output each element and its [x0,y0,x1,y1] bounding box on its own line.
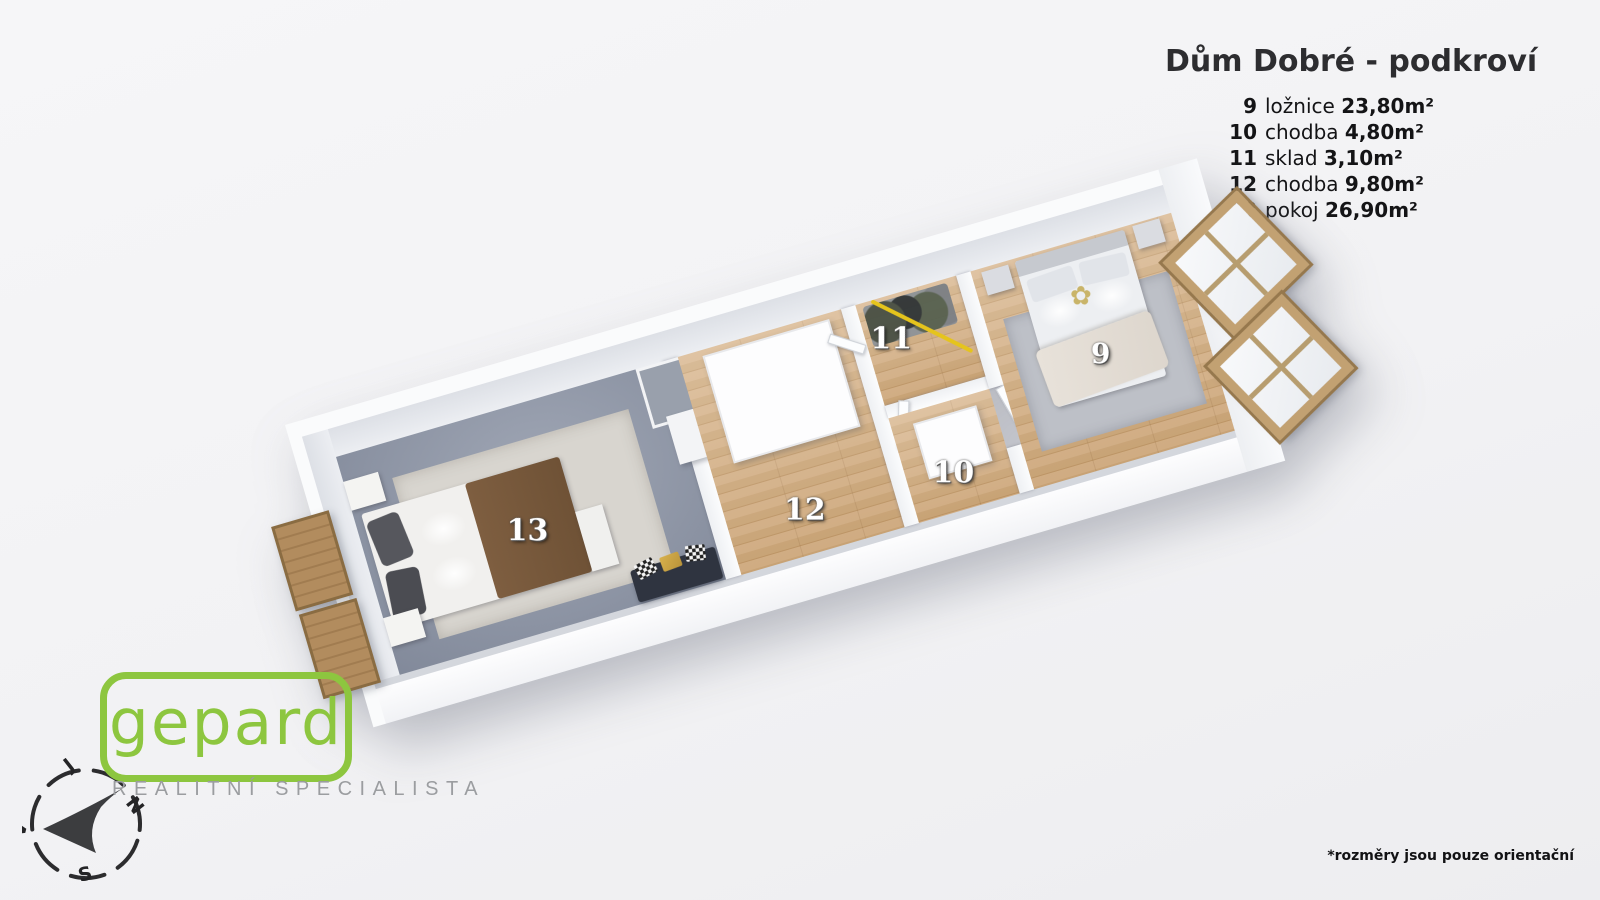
legend-row: 12 chodba 9,80m² [1221,171,1535,197]
legend-row: 10 chodba 4,80m² [1221,119,1535,145]
checkered-pillow [685,544,707,562]
legend-room-entry: ložnice 23,80m² [1265,93,1535,119]
light-glow [417,506,471,552]
legend-room-area: 23,80m² [1341,94,1434,118]
legend-row: 9 ložnice 23,80m² [1221,93,1535,119]
legend-room-area: 3,10m² [1324,146,1403,170]
floorplan-render: 13 12 11 [285,158,1285,727]
gepard-logo-text: gepard [109,691,343,764]
legend-room-name: ložnice [1265,94,1335,118]
light-glow [428,551,482,597]
legend-room-name: pokoj [1265,198,1319,222]
legend-room-area: 9,80m² [1345,172,1424,196]
compass-letter-s: S [76,862,95,887]
legend-room-entry: chodba 4,80m² [1265,119,1535,145]
legend-room-entry: sklad 3,10m² [1265,145,1535,171]
room-label-12: 12 [784,496,826,526]
room-label-10: 10 [932,458,974,488]
nightstand [981,265,1015,296]
brand-tagline: REALITNÍ SPECIALISTA [112,778,485,801]
compass-needle [43,788,123,853]
page-title: Dům Dobré - podkroví [1165,44,1535,79]
pillow [365,510,415,567]
disclaimer-note: *rozměry jsou pouze orientační [1327,848,1574,864]
flower-decor-icon: ✿ [1070,283,1092,309]
legend-room-area: 26,90m² [1325,198,1418,222]
legend-room-area: 4,80m² [1345,120,1424,144]
legend-room-name: chodba [1265,120,1339,144]
legend-room-entry: pokoj 26,90m² [1265,197,1535,223]
room-label-11: 11 [870,324,912,354]
legend-room-name: sklad [1265,146,1318,170]
legend-room-number: 9 [1221,93,1257,119]
room-legend: 9 ložnice 23,80m² 10 chodba 4,80m² 11 sk… [1221,93,1535,223]
gepard-logo: gepard [100,672,352,782]
floorplan-page: Dům Dobré - podkroví 9 ložnice 23,80m² 1… [0,0,1600,900]
legend-row: 13 pokoj 26,90m² [1221,197,1535,223]
nightstand [343,472,386,511]
legend-room-number: 11 [1221,145,1257,171]
room-label-9: 9 [1091,340,1110,368]
legend-room-number: 10 [1221,119,1257,145]
title-block: Dům Dobré - podkroví 9 ložnice 23,80m² 1… [1165,44,1535,223]
legend-room-entry: chodba 9,80m² [1265,171,1535,197]
nightstand [1132,218,1166,249]
legend-room-name: chodba [1265,172,1339,196]
legend-row: 11 sklad 3,10m² [1221,145,1535,171]
room-label-13: 13 [507,516,549,546]
